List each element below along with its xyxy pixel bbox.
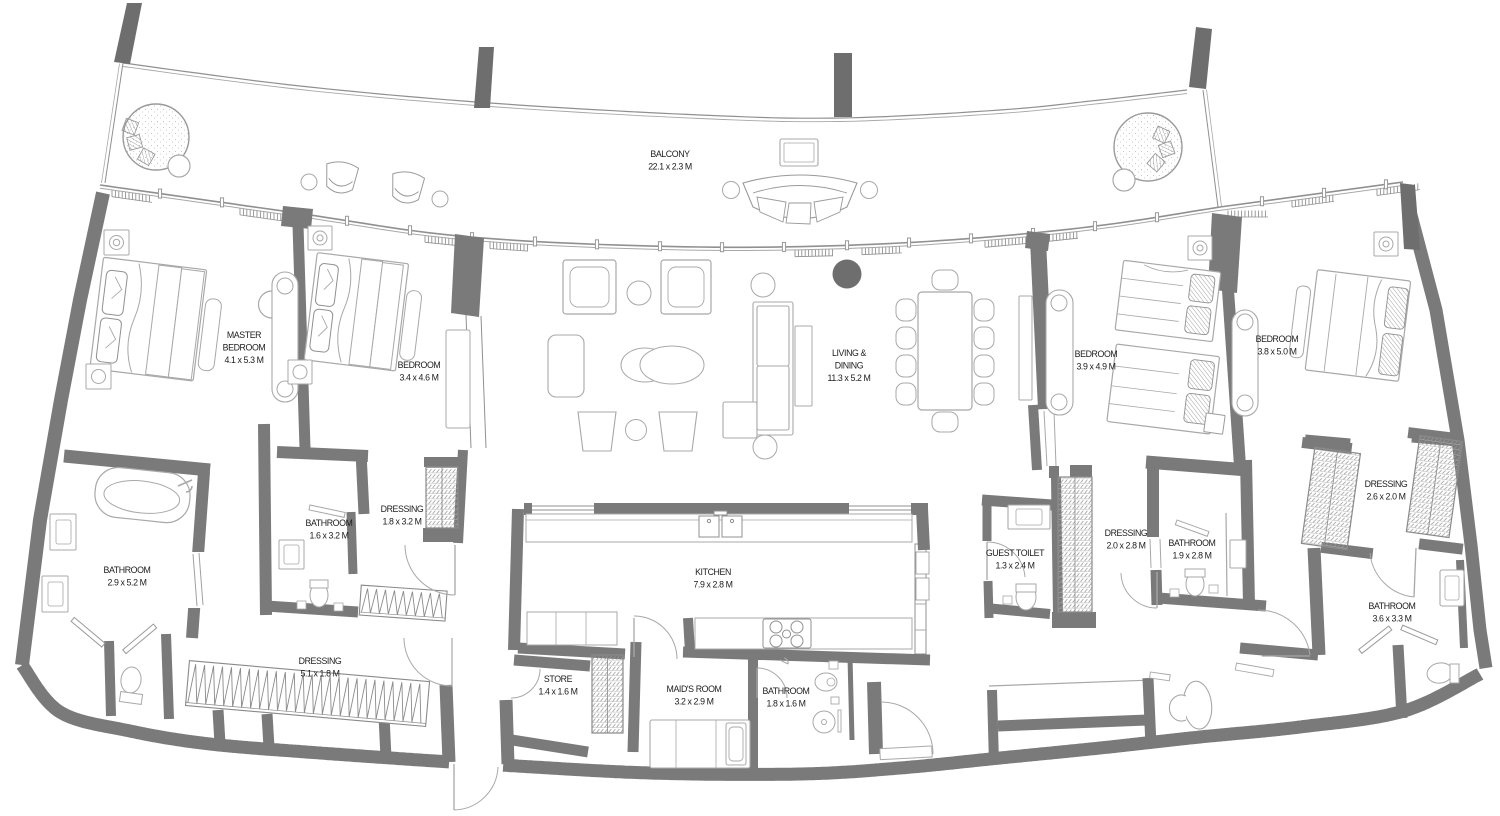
svg-text:MASTER: MASTER bbox=[227, 330, 261, 340]
svg-text:BEDROOM: BEDROOM bbox=[1256, 334, 1299, 344]
svg-text:BEDROOM: BEDROOM bbox=[1075, 349, 1118, 359]
svg-text:22.1 x 2.3 M: 22.1 x 2.3 M bbox=[648, 162, 692, 172]
svg-text:3.9 x 4.9 M: 3.9 x 4.9 M bbox=[1076, 362, 1115, 372]
svg-text:2.6 x 2.0 M: 2.6 x 2.0 M bbox=[1366, 492, 1405, 502]
svg-text:LIVING &: LIVING & bbox=[832, 348, 866, 358]
svg-text:DRESSING: DRESSING bbox=[1365, 479, 1408, 489]
svg-text:KITCHEN: KITCHEN bbox=[695, 567, 731, 577]
svg-text:1.8 x 1.6 M: 1.8 x 1.6 M bbox=[766, 699, 805, 709]
svg-text:BEDROOM: BEDROOM bbox=[223, 343, 266, 353]
svg-text:DRESSING: DRESSING bbox=[299, 656, 342, 666]
svg-text:1.3 x 2.4 M: 1.3 x 2.4 M bbox=[995, 561, 1034, 571]
svg-text:BATHROOM: BATHROOM bbox=[763, 686, 810, 696]
svg-text:BATHROOM: BATHROOM bbox=[104, 565, 151, 575]
svg-text:DRESSING: DRESSING bbox=[381, 504, 424, 514]
svg-text:STORE: STORE bbox=[544, 674, 573, 684]
svg-text:BATHROOM: BATHROOM bbox=[1369, 601, 1416, 611]
svg-text:GUEST TOILET: GUEST TOILET bbox=[986, 548, 1045, 558]
svg-text:1.9 x 2.8 M: 1.9 x 2.8 M bbox=[1172, 551, 1211, 561]
svg-text:4.1 x 5.3 M: 4.1 x 5.3 M bbox=[224, 355, 263, 365]
svg-text:DRESSING: DRESSING bbox=[1105, 528, 1148, 538]
svg-text:MAID'S ROOM: MAID'S ROOM bbox=[667, 684, 722, 694]
svg-text:11.3 x 5.2 M: 11.3 x 5.2 M bbox=[828, 373, 871, 383]
svg-text:3.8 x 5.0 M: 3.8 x 5.0 M bbox=[1257, 347, 1296, 357]
svg-text:1.6 x 3.2 M: 1.6 x 3.2 M bbox=[309, 531, 348, 541]
svg-text:1.4 x 1.6 M: 1.4 x 1.6 M bbox=[538, 687, 577, 697]
svg-text:3.4 x 4.6 M: 3.4 x 4.6 M bbox=[399, 373, 438, 383]
svg-text:DINING: DINING bbox=[835, 361, 864, 371]
svg-text:2.9 x 5.2 M: 2.9 x 5.2 M bbox=[107, 578, 146, 588]
svg-text:3.6 x 3.3 M: 3.6 x 3.3 M bbox=[1372, 614, 1411, 624]
svg-text:BALCONY: BALCONY bbox=[650, 149, 690, 159]
svg-text:BATHROOM: BATHROOM bbox=[306, 518, 353, 528]
svg-text:7.9 x 2.8 M: 7.9 x 2.8 M bbox=[693, 580, 732, 590]
svg-text:BEDROOM: BEDROOM bbox=[398, 360, 441, 370]
svg-text:2.0 x 2.8 M: 2.0 x 2.8 M bbox=[1106, 541, 1145, 551]
svg-text:3.2 x 2.9 M: 3.2 x 2.9 M bbox=[674, 697, 713, 707]
svg-text:1.8 x 3.2 M: 1.8 x 3.2 M bbox=[382, 517, 421, 527]
svg-text:BATHROOM: BATHROOM bbox=[1169, 538, 1216, 548]
svg-text:5.1 x 1.8 M: 5.1 x 1.8 M bbox=[300, 669, 339, 679]
